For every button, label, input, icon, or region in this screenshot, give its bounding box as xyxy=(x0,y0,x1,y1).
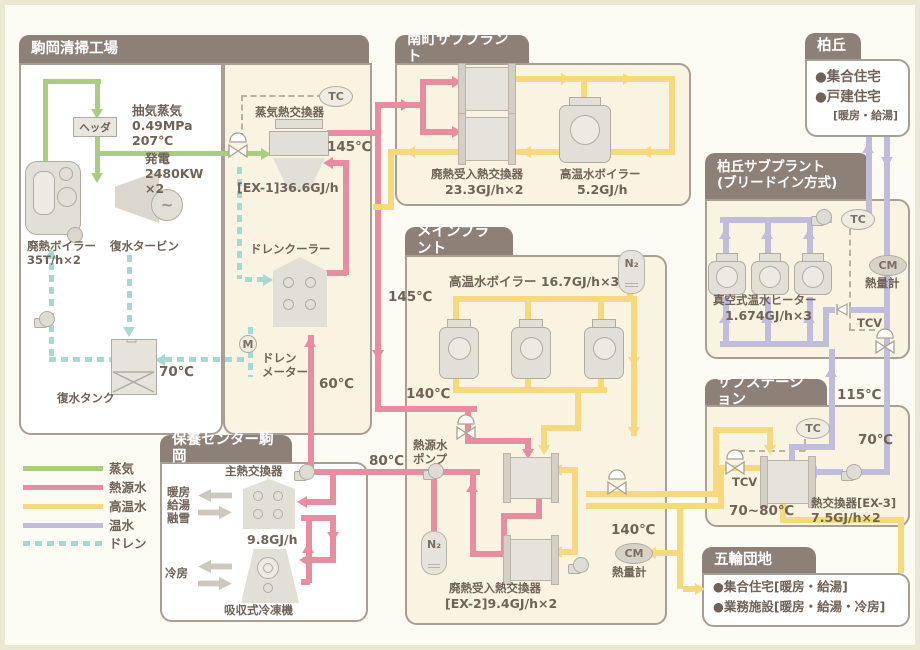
vacuum-heater-2-icon xyxy=(751,253,789,295)
tab-kashiwaoka-sub: 柏丘サブプラント(ブリードイン方式) xyxy=(705,153,869,199)
vacuum-heater-label: 真空式温水ヒーター xyxy=(713,294,817,308)
legend-steam-label: 蒸気 xyxy=(109,461,134,476)
hoyo-title: 保養センター駒岡 xyxy=(172,432,280,465)
route-temp-140-label: 140℃ xyxy=(406,386,451,402)
main-yl-valve-icon xyxy=(605,468,629,499)
tab-gorin: 五輪団地 xyxy=(702,547,816,573)
hoyo-load-snowmelt: 融雪 xyxy=(167,512,190,526)
heat-source-pump-label: 熱源水ポンプ xyxy=(413,439,448,467)
minamimachi-hx-label: 廃熱受入熱交換器 xyxy=(431,168,523,182)
kashiwaoka-line1: ●集合住宅 xyxy=(815,69,881,85)
ex2-hx1-icon xyxy=(510,457,552,499)
tab-hoyo-center: 保養センター駒岡 xyxy=(160,435,292,462)
substation-range-label: 70~80℃ xyxy=(729,503,794,519)
ex3-capacity: 7.5GJ/h×2 xyxy=(811,510,881,525)
minamimachi-boiler-capacity: 5.2GJ/h xyxy=(577,182,628,197)
legend-heat-source-label: 熱源水 xyxy=(109,480,147,495)
minamimachi-title: 南町サブプラント xyxy=(407,32,517,65)
substation-title: サブステーション xyxy=(717,375,815,408)
cm-badge-main: CM xyxy=(615,543,653,564)
legend-high-temp-label: 高温水 xyxy=(109,499,147,514)
n2-tank-top-icon: N₂ xyxy=(618,250,645,294)
legend-drain-line xyxy=(23,541,103,546)
temp-60-label: 60℃ xyxy=(319,376,354,392)
legend-heat-source-line xyxy=(23,485,103,490)
minamimachi-hx1-icon xyxy=(465,67,509,111)
temp-70-label: 70℃ xyxy=(159,364,194,380)
legend-drain-label: ドレン xyxy=(109,536,147,551)
main-heat-meter-label: 熱量計 xyxy=(612,566,647,580)
temp-145-label: 145℃ xyxy=(327,139,372,155)
tab-komaoka-plant: 駒岡清掃工場 xyxy=(19,35,369,63)
route-temp-145-label: 145℃ xyxy=(388,289,433,305)
hoyo-capacity-label: 9.8GJ/h xyxy=(247,532,298,547)
substation-tcv-valve-icon xyxy=(723,448,747,479)
main-boiler-2-icon xyxy=(511,319,551,379)
gorin-line1: ●集合住宅[暖房・給湯] xyxy=(713,579,848,594)
vacuum-heater-capacity: 1.674GJ/h×3 xyxy=(725,308,812,323)
check-valve-icon xyxy=(834,302,849,321)
minamimachi-boiler-icon xyxy=(559,97,611,163)
kashiwaoka-sub-meter-label: 熱量計 xyxy=(865,277,900,291)
main-plant-title: メインプラント xyxy=(417,224,501,257)
drain-meter-badge: M xyxy=(239,335,257,353)
main-pink-valve-icon xyxy=(454,413,478,444)
main-temp-140-label: 140℃ xyxy=(611,522,656,538)
steam-hx-label: 蒸気熱交換器 xyxy=(255,106,324,120)
main-yl-pump-icon xyxy=(568,557,589,573)
main-boilers-label: 高温水ボイラー 16.7GJ/h×3 xyxy=(449,274,619,289)
substation-temp-70-label: 70℃ xyxy=(858,432,893,448)
hoyo-load-cooling: 冷房 xyxy=(165,567,188,581)
minamimachi-hx-capacity: 23.3GJ/h×2 xyxy=(445,182,523,197)
tc-badge-kashiwaoka-sub: TC xyxy=(841,209,875,230)
kashiwaoka-line2: ●戸建住宅 xyxy=(815,89,881,105)
extraction-steam-label: 抽気蒸気0.49MPa207℃ xyxy=(132,103,193,148)
vacuum-heater-3-icon xyxy=(794,253,832,295)
kashiwaoka-line3: [暖房・給湯] xyxy=(833,109,898,122)
waste-boiler-label: 廃熱ボイラー35T/h×2 xyxy=(27,240,96,268)
kashiwaoka-sub-tcv-valve-icon xyxy=(873,327,897,358)
gorin-title: 五輪団地 xyxy=(714,552,772,569)
gorin-line2: ●業務施設[暖房・給湯・冷房] xyxy=(713,599,885,614)
main-boiler-1-icon xyxy=(439,319,479,379)
kashiwaoka-title: 柏丘 xyxy=(817,38,846,55)
hoyo-hx-label: 主熱交換器 xyxy=(225,465,283,479)
turbine-label: 復水タービン xyxy=(110,240,179,254)
kashiwaoka-sub-title: 柏丘サブプラント(ブリードイン方式) xyxy=(717,160,837,191)
hoyo-pump-icon xyxy=(294,464,315,480)
steam-valve-icon xyxy=(226,131,250,162)
condensate-tank-icon xyxy=(111,339,157,395)
ex1-capacity-label: [EX-1]36.6GJ/h xyxy=(237,180,339,195)
ex3-label: 熱交換器[EX-3] xyxy=(811,497,896,511)
komaoka-title: 駒岡清掃工場 xyxy=(31,41,118,58)
power-gen-label: 発電2480KW×2 xyxy=(145,151,203,196)
drain-meter-label: ドレンメーター xyxy=(262,352,308,380)
legend-steam-line xyxy=(23,466,103,471)
ex3-hx-icon xyxy=(767,460,809,504)
legend-warm-water-label: 温水 xyxy=(109,518,134,533)
tab-kashiwaoka: 柏丘 xyxy=(805,33,861,59)
main-boiler-3-icon xyxy=(584,319,624,379)
district-heating-diagram: 駒岡清掃工場 南町サブプラント メインプラント 柏丘 柏丘サブプラント(ブリード… xyxy=(0,0,920,650)
cm-badge-kashiwaoka-sub: CM xyxy=(869,255,907,276)
tab-minamimachi: 南町サブプラント xyxy=(395,35,529,63)
n2-tank-bottom-icon: N₂ xyxy=(421,531,447,575)
tc-badge-substation: TC xyxy=(796,418,830,439)
condensate-pump-icon xyxy=(34,311,55,327)
drain-cooler-label: ドレンクーラー xyxy=(250,243,331,257)
temp-115-label: 115℃ xyxy=(837,387,882,403)
minamimachi-hx2-icon xyxy=(465,117,509,161)
steam-header-box: ヘッダ xyxy=(73,117,117,137)
ex2-label: 廃熱受入熱交換器 xyxy=(449,582,541,596)
ex2-hx2-icon xyxy=(510,539,552,581)
ex2-capacity: [EX-2]9.4GJ/h×2 xyxy=(445,596,557,611)
route-temp-80-label: 80℃ xyxy=(369,453,404,469)
tab-substation: サブステーション xyxy=(705,379,827,405)
hoyo-chiller-label: 吸収式冷凍機 xyxy=(224,604,293,618)
tc-badge-komaoka: TC xyxy=(319,86,353,107)
legend-high-temp-line xyxy=(23,504,103,509)
condensate-tank-label: 復水タンク xyxy=(57,392,115,406)
tab-main-plant: メインプラント xyxy=(405,227,513,255)
substation-pump-icon xyxy=(841,464,862,480)
kashiwaoka-sub-pump-icon xyxy=(811,209,832,225)
vacuum-heater-1-icon xyxy=(708,253,746,295)
legend-warm-water-line xyxy=(23,523,103,528)
minamimachi-boiler-label: 高温水ボイラー xyxy=(560,168,641,182)
